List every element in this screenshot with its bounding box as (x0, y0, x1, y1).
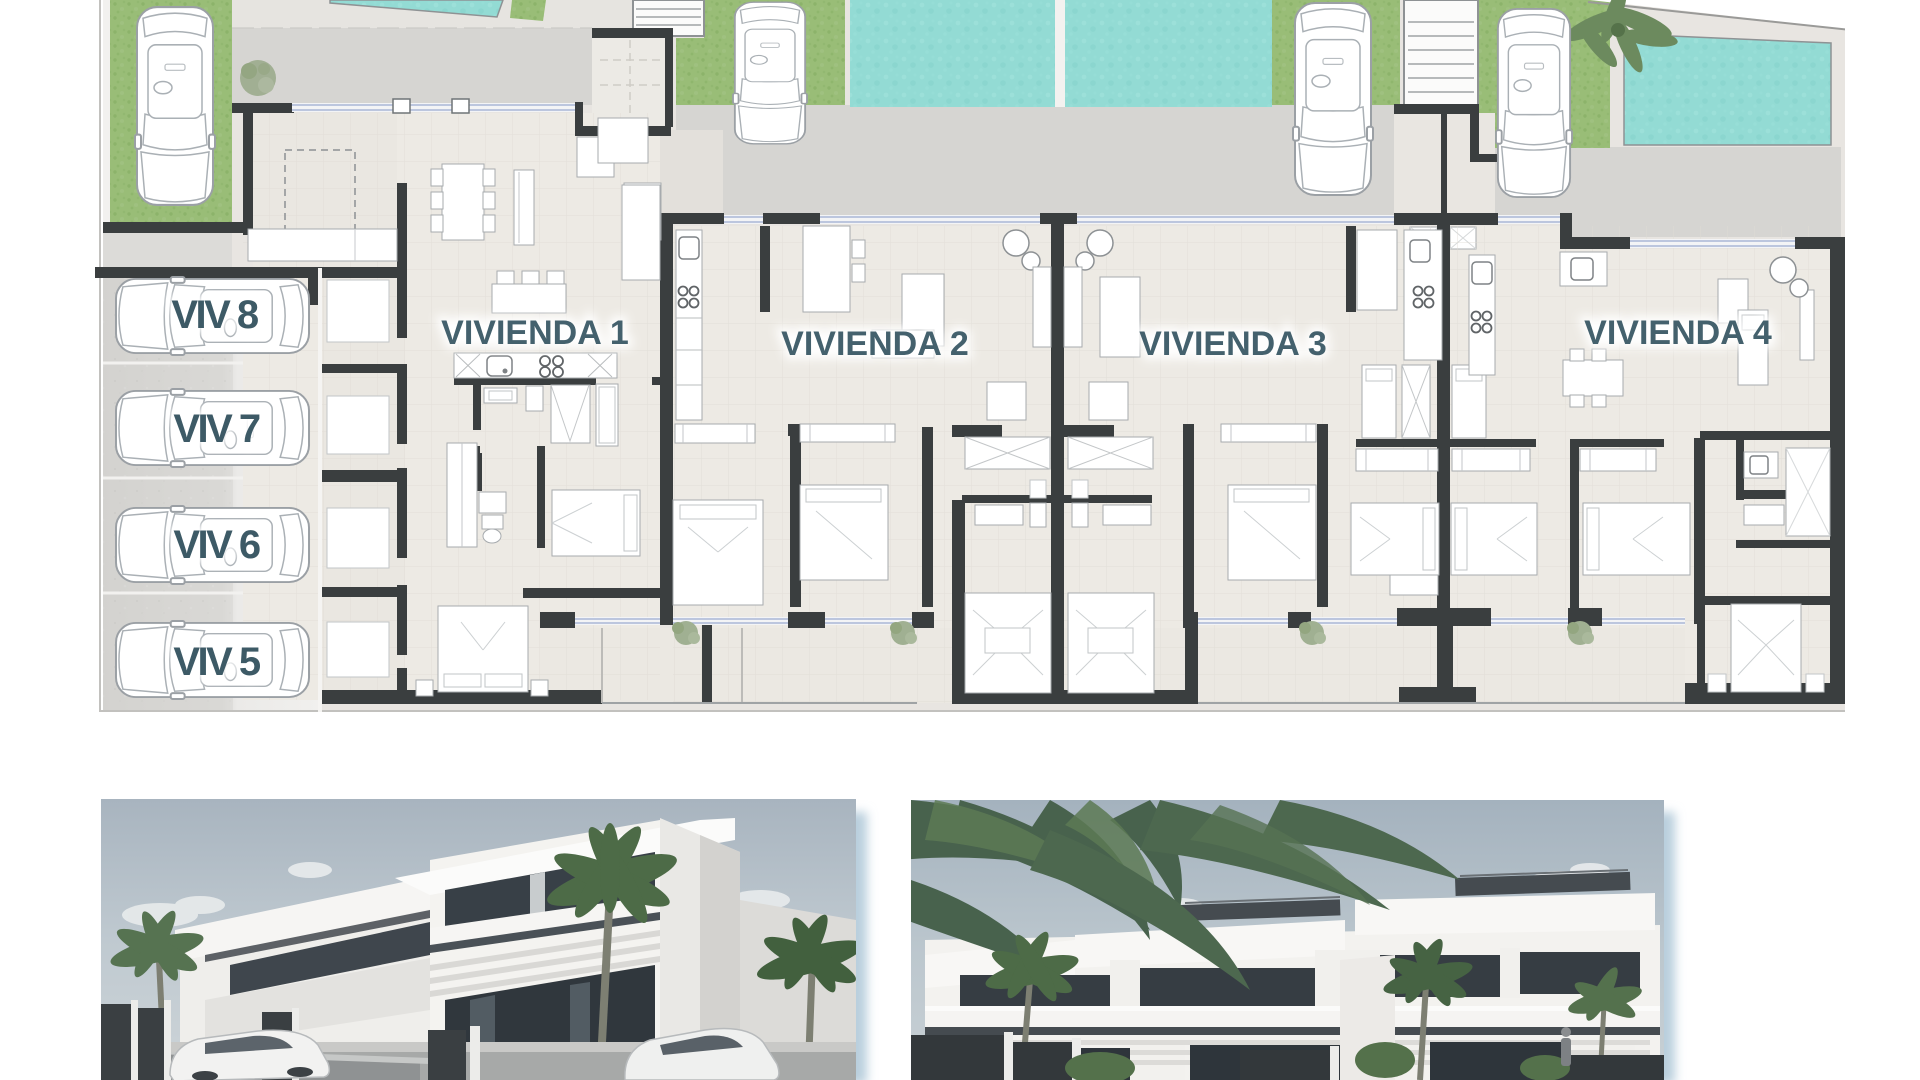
svg-text:VIVIENDA 1: VIVIENDA 1 (441, 314, 629, 352)
svg-text:VIV 5: VIV 5 (173, 640, 261, 684)
svg-text:VIV 7: VIV 7 (173, 407, 260, 451)
svg-text:VIVIENDA 4: VIVIENDA 4 (1584, 314, 1772, 352)
svg-text:VIVIENDA 2: VIVIENDA 2 (781, 325, 969, 363)
svg-text:VIV 8: VIV 8 (171, 293, 259, 337)
svg-text:VIV 6: VIV 6 (173, 523, 260, 567)
svg-text:VIVIENDA 3: VIVIENDA 3 (1139, 325, 1327, 363)
